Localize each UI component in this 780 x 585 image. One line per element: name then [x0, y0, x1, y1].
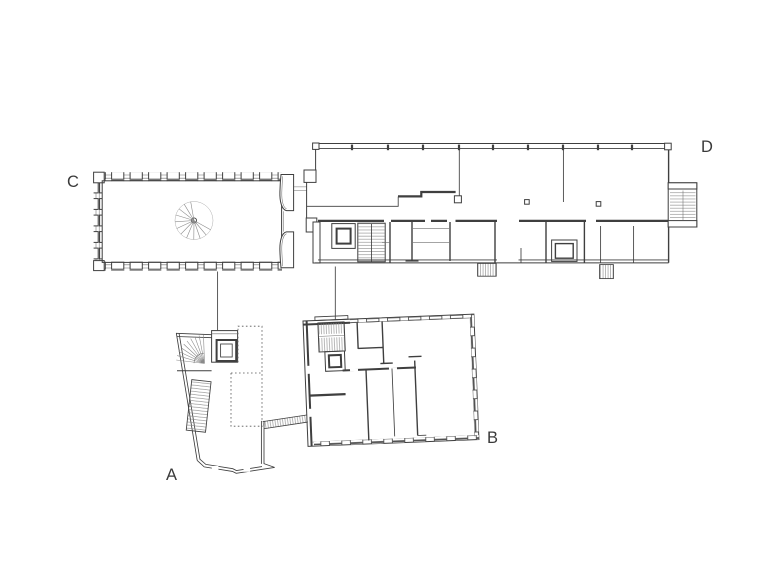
link-corridor-c-d — [294, 187, 307, 191]
label-building-b: B — [487, 429, 498, 447]
label-building-d: D — [701, 138, 713, 156]
building-c-pier-walls — [94, 172, 282, 270]
building-d-north-glazed-wall — [313, 143, 672, 150]
building-d-plan — [304, 143, 697, 279]
floor-plan-page: C D A B — [0, 0, 780, 585]
building-d-stair-core — [358, 223, 385, 262]
building-a-south-wall — [197, 459, 274, 473]
building-a-elevator-core — [212, 331, 238, 363]
label-building-c: C — [67, 173, 79, 191]
building-a-plan — [176, 326, 275, 473]
spiral-staircase — [175, 202, 213, 240]
building-a-north-wall — [176, 333, 212, 337]
building-b-stair-core — [318, 322, 345, 352]
label-building-a: A — [166, 466, 177, 484]
building-c-plan — [94, 172, 307, 270]
building-b-envelope — [303, 314, 479, 446]
building-d-room-partitions — [382, 222, 634, 263]
building-d-east-wall-and-exterior-stair — [668, 150, 697, 263]
building-a-straight-stair — [186, 380, 211, 433]
building-d-hall-partitions — [307, 149, 668, 223]
floor-plan-canvas: C D A B — [0, 0, 780, 585]
building-d-elevator — [332, 224, 355, 249]
building-b-elevator — [325, 351, 345, 371]
building-b-plan — [303, 311, 479, 447]
building-d-exterior-steps — [478, 263, 614, 278]
link-bridge-a-b — [263, 415, 308, 429]
